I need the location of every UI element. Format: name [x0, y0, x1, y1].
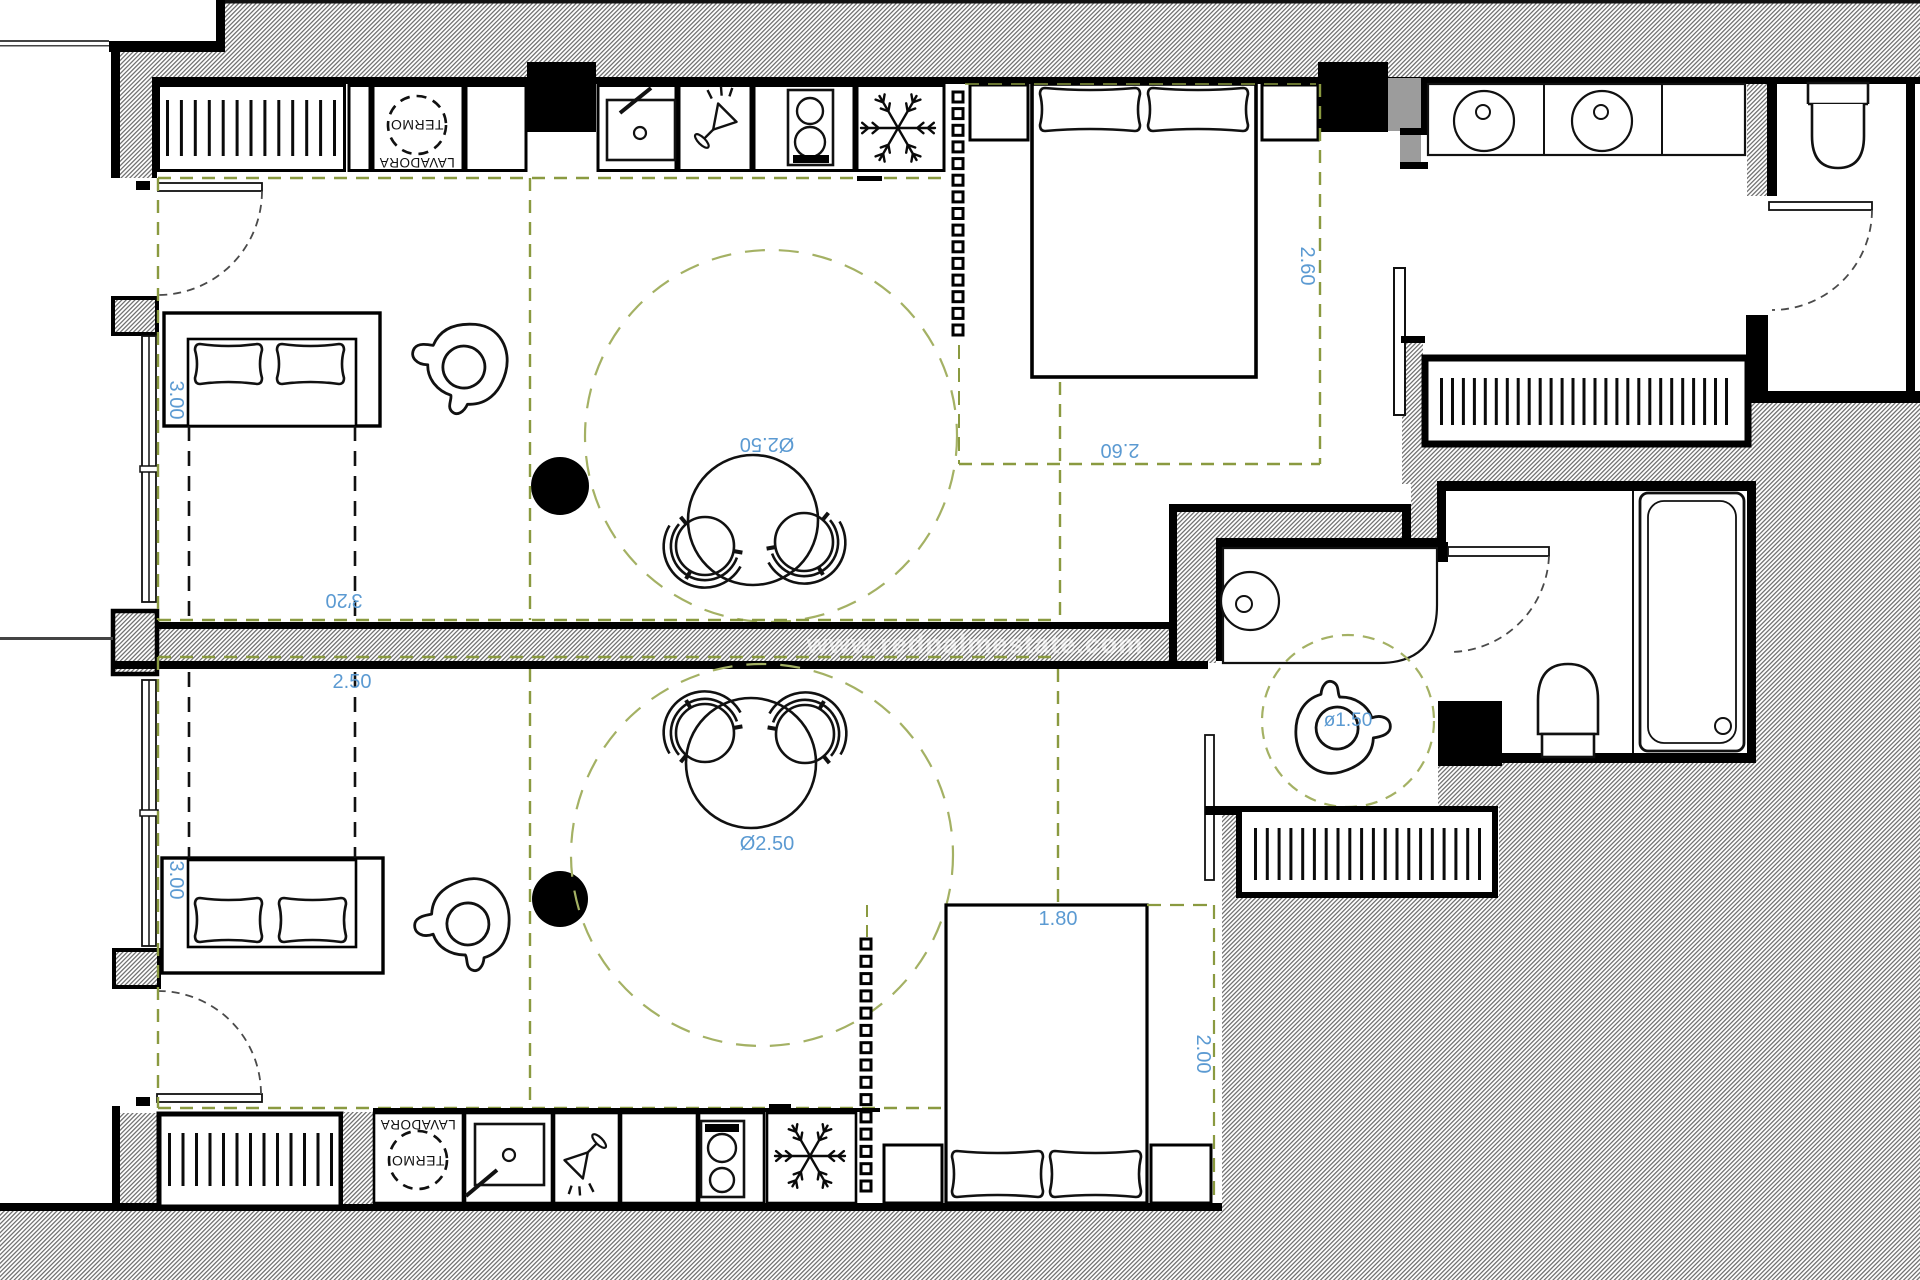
svg-text:2.50: 2.50 [333, 671, 372, 693]
svg-text:TERMO: TERMO [390, 117, 443, 133]
svg-text:LAVADORA: LAVADORA [380, 1117, 456, 1132]
svg-text:www.redpalmestate.com: www.redpalmestate.com [806, 629, 1144, 659]
svg-text:3′20: 3′20 [325, 589, 362, 611]
svg-text:Ø2.50: Ø2.50 [740, 433, 794, 455]
svg-text:TERMO: TERMO [391, 1153, 444, 1169]
svg-text:ø1.50: ø1.50 [1324, 710, 1373, 731]
svg-text:3.00: 3.00 [165, 381, 187, 420]
svg-text:LAVADORA: LAVADORA [379, 155, 455, 170]
svg-text:2.60: 2.60 [1296, 247, 1318, 286]
svg-text:2.00: 2.00 [1192, 1035, 1214, 1074]
svg-text:3.00: 3.00 [165, 861, 187, 900]
svg-text:2.60: 2.60 [1101, 439, 1140, 461]
svg-text:Ø2.50: Ø2.50 [740, 833, 794, 855]
svg-text:1.80: 1.80 [1039, 908, 1078, 930]
